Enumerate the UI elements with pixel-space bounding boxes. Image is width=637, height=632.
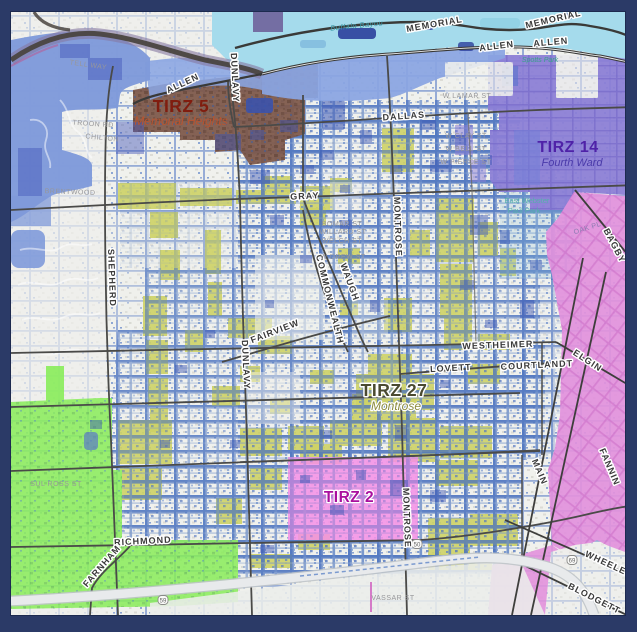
- svg-text:W DREW ST: W DREW ST: [320, 254, 366, 261]
- svg-text:W PIERCE ST: W PIERCE ST: [440, 159, 491, 166]
- svg-text:50: 50: [414, 542, 421, 548]
- svg-text:W BELL ST: W BELL ST: [446, 146, 487, 153]
- svg-text:SUL ROSS ST: SUL ROSS ST: [30, 481, 82, 488]
- svg-text:69: 69: [569, 558, 576, 564]
- svg-text:Memorial Heights: Memorial Heights: [134, 114, 227, 128]
- svg-text:59: 59: [160, 598, 167, 604]
- svg-text:Fourth Ward: Fourth Ward: [542, 157, 604, 169]
- svg-text:East Webster: East Webster: [505, 196, 550, 205]
- svg-text:W CLAY ST: W CLAY ST: [445, 133, 487, 140]
- svg-text:MONTROSE: MONTROSE: [392, 197, 404, 257]
- svg-text:Paul Park: Paul Park: [508, 206, 541, 215]
- svg-text:TIRZ 27: TIRZ 27: [361, 380, 428, 400]
- svg-text:WILLARD ST: WILLARD ST: [319, 229, 366, 236]
- svg-text:VASSAR ST: VASSAR ST: [371, 595, 414, 602]
- svg-text:Spotts Park: Spotts Park: [522, 57, 559, 64]
- svg-text:WELCH ST: WELCH ST: [322, 238, 362, 245]
- svg-text:BOMAR ST: BOMAR ST: [322, 221, 363, 228]
- svg-text:W LAMAR ST: W LAMAR ST: [443, 93, 492, 100]
- svg-text:TIRZ 14: TIRZ 14: [537, 139, 598, 156]
- svg-text:TIRZ 5: TIRZ 5: [153, 96, 209, 116]
- svg-text:SHEPHERD: SHEPHERD: [106, 249, 118, 307]
- svg-text:Montrose: Montrose: [371, 399, 421, 413]
- svg-text:GRAY: GRAY: [290, 190, 320, 202]
- svg-text:TIRZ 2: TIRZ 2: [324, 489, 374, 506]
- svg-text:MONTROSE: MONTROSE: [401, 488, 413, 548]
